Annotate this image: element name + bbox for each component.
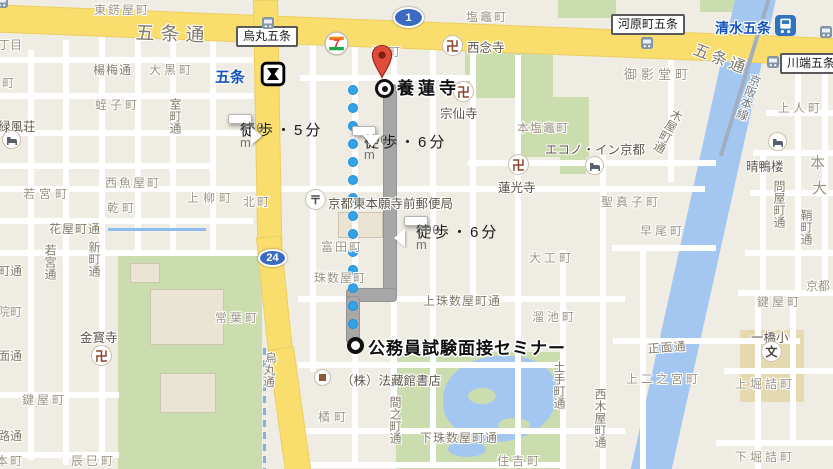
minor-road <box>430 45 436 466</box>
town-label: 丁目 <box>0 36 22 53</box>
town-label: 上堀詰町 <box>735 375 795 392</box>
minor-road <box>745 250 833 256</box>
town-label: 溜池町 <box>532 308 577 325</box>
post-office-building <box>338 212 383 238</box>
walk-info-box[interactable]: 徒歩・6分500 m <box>352 126 376 136</box>
town-label: 本町 <box>0 452 24 469</box>
route-origin-label[interactable]: 公務員試験面接セミナー <box>368 334 566 359</box>
town-label: 東錺屋町 <box>94 1 150 18</box>
street-label-vertical: 木屋町通 <box>649 106 687 156</box>
poi-label[interactable]: 宗仙寺 <box>440 103 478 122</box>
town-label: 鍵屋町 <box>22 391 67 408</box>
walk-info-box[interactable]: 徒歩・5分450 m <box>228 114 252 124</box>
walking-route-dot <box>348 85 358 95</box>
minor-road <box>210 25 216 252</box>
poi-label[interactable]: 京都東本願寺前郵便局 <box>328 193 453 212</box>
walking-route-dot <box>348 211 358 221</box>
walking-route-dot <box>348 103 358 113</box>
route-destination-circle[interactable] <box>375 79 394 98</box>
town-label: 御影堂町 <box>624 64 692 83</box>
street-label-vertical: 新町通 <box>86 241 103 277</box>
street-label-vertical: 西木屋町通 <box>592 388 609 448</box>
town-label: 珠数屋町 <box>314 269 366 286</box>
alternate-route-line[interactable] <box>383 84 397 300</box>
minor-road <box>640 245 646 469</box>
town-label: 早尾町 <box>640 222 685 239</box>
walking-route-dot <box>348 301 358 311</box>
poi-label[interactable]: 金寳寺 <box>80 327 118 346</box>
minor-road <box>716 440 833 446</box>
town-label: 大 <box>812 177 827 198</box>
town-label: 町 <box>2 74 14 91</box>
minor-road <box>515 55 521 466</box>
street-label: 楊梅通 <box>93 61 132 78</box>
poi-label[interactable]: 西念寺 <box>467 37 505 56</box>
map-canvas[interactable]: 東錺屋町丁目町大黒町蛭子町津町塩竈町御影堂町上人町本塩竈町若宮町西魚屋町乾町上柳… <box>0 0 833 469</box>
minor-road <box>135 30 141 252</box>
town-label: 蛭子町 <box>95 96 140 113</box>
poi-label[interactable]: 蓮光寺 <box>498 177 536 196</box>
station-label[interactable]: 五条 <box>215 66 245 87</box>
park-patch <box>558 0 616 18</box>
road-junction-box: 川端五条 <box>780 53 833 74</box>
town-label: 塩竈町 <box>466 8 508 25</box>
temple-building <box>150 289 224 345</box>
town-label: 富田町 <box>321 238 363 255</box>
minor-road <box>560 250 566 469</box>
street-label-vertical: 土手町通 <box>551 361 568 409</box>
town-label: 上二之宮町 <box>626 370 701 387</box>
town-label: 上人町 <box>778 99 823 116</box>
walking-route-dot <box>348 319 358 329</box>
town-label: 本 <box>810 152 825 173</box>
walk-info-box[interactable]: 徒歩・6分500 m <box>404 216 428 226</box>
pond-island <box>468 388 496 404</box>
route-shield: 24 <box>258 249 287 267</box>
town-label: 上柳町 <box>187 189 235 206</box>
temple-building <box>130 263 160 283</box>
minor-road <box>790 300 796 442</box>
destination-center-dot <box>382 86 388 92</box>
street-label-vertical: 鞘町通 <box>798 209 815 245</box>
town-label: 下堀詰町 <box>735 448 795 465</box>
town-label: 乾町 <box>107 199 137 216</box>
canal <box>108 228 206 231</box>
town-label: 京都 <box>806 277 830 294</box>
town-label: 橘町 <box>318 408 350 425</box>
svg-text:7: 7 <box>333 38 339 50</box>
park-higashi-honganji <box>118 253 262 469</box>
street-label-vertical: 間之町通 <box>387 396 404 444</box>
street-label-vertical: 烏丸通 <box>260 351 280 388</box>
town-label: 大工町 <box>529 249 574 266</box>
poi-label[interactable]: （株）法藏館書店 <box>341 370 441 389</box>
street-label: 五条通 <box>135 18 211 48</box>
street-label: 上珠数屋町通 <box>423 292 501 309</box>
town-label: 西魚屋町 <box>105 174 161 191</box>
road-junction-box: 烏丸五条 <box>236 26 298 47</box>
street-label: 路通 <box>0 427 22 444</box>
temple-building <box>160 373 216 413</box>
route-origin-circle[interactable] <box>347 337 364 354</box>
route-shield: 1 <box>393 7 424 28</box>
minor-road <box>724 368 833 374</box>
street-label: 面通 <box>0 347 22 364</box>
town-label: 本塩竈町 <box>517 119 569 136</box>
walking-route-dot <box>348 139 358 149</box>
street-label-vertical: 若宮通 <box>42 244 59 280</box>
street-label-vertical: 問屋町通 <box>771 180 788 228</box>
street-label: 下珠数屋町通 <box>420 429 498 446</box>
town-label: 辰巳町 <box>71 452 116 469</box>
street-label: 町通 <box>0 262 22 279</box>
station-label[interactable]: 清水五条 <box>715 18 771 38</box>
street-label: 正面通 <box>647 337 687 357</box>
info-box-pointer <box>251 127 262 145</box>
walking-route-dot <box>348 157 358 167</box>
town-label: 院町 <box>0 303 22 320</box>
town-label: 住吉町 <box>497 452 542 469</box>
info-box-pointer <box>363 135 381 147</box>
street-label: 花屋町通 <box>49 220 101 237</box>
minor-road <box>0 250 263 256</box>
park-patch <box>465 52 553 98</box>
minor-road <box>822 56 828 292</box>
street-label-vertical: 室町通 <box>167 98 184 134</box>
route-destination-label[interactable]: 養蓮寺 <box>397 74 460 99</box>
town-label: 鍵屋町 <box>757 293 802 310</box>
walking-route-dot <box>348 175 358 185</box>
info-box-pointer <box>394 229 405 247</box>
town-label: 大黒町 <box>149 61 194 78</box>
road-junction-box: 河原町五条 <box>611 14 685 35</box>
walk-distance: 500 m <box>416 222 441 252</box>
town-label: 若宮町 <box>23 185 71 202</box>
minor-road <box>612 245 716 251</box>
town-label: 北町 <box>243 193 271 210</box>
poi-label[interactable]: 晴鴨楼 <box>746 156 784 175</box>
town-label: 常葉町 <box>215 309 260 326</box>
town-label: 聖真子町 <box>601 193 661 210</box>
